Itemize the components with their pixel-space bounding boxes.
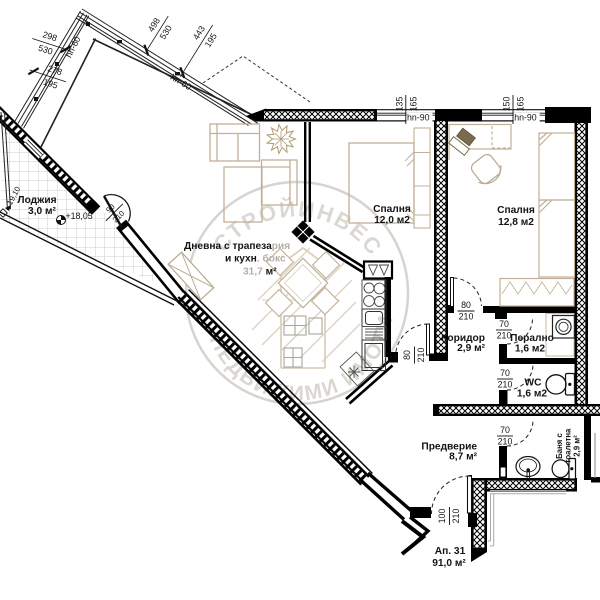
svg-text:1,6 м2: 1,6 м2 [515, 344, 546, 355]
svg-text:91,0 м²: 91,0 м² [432, 558, 466, 569]
svg-text:210: 210 [498, 380, 513, 390]
svg-text:165: 165 [516, 97, 526, 112]
svg-text:Спалня: Спалня [497, 205, 535, 216]
svg-text:70: 70 [500, 425, 510, 435]
svg-text:Спалня: Спалня [373, 204, 411, 215]
svg-text:12,8 м2: 12,8 м2 [498, 217, 534, 228]
svg-text:100: 100 [437, 509, 447, 524]
svg-text:135: 135 [394, 97, 404, 112]
svg-text:210: 210 [459, 312, 474, 322]
svg-text:2,9 м²: 2,9 м² [457, 343, 486, 354]
svg-text:12,0 м2: 12,0 м2 [374, 215, 410, 226]
svg-text:210: 210 [498, 437, 513, 447]
svg-text:165: 165 [408, 97, 418, 112]
svg-text:hn-90: hn-90 [514, 113, 537, 123]
svg-text:и кухн. бокс: и кухн. бокс [225, 253, 286, 265]
svg-text:8,7 м²: 8,7 м² [449, 452, 478, 463]
svg-text:тоалетна: тоалетна [564, 428, 573, 463]
svg-text:+18,05: +18,05 [66, 211, 93, 221]
svg-text:80: 80 [402, 350, 412, 360]
svg-text:WC: WC [525, 378, 543, 389]
svg-text:80: 80 [461, 300, 471, 310]
svg-text:31,7 м²: 31,7 м² [243, 267, 277, 278]
svg-text:Дневна с трапезария: Дневна с трапезария [184, 241, 290, 252]
svg-text:Лоджия: Лоджия [17, 195, 56, 206]
svg-text:1,6 м2: 1,6 м2 [517, 389, 548, 400]
svg-text:210: 210 [416, 348, 426, 363]
svg-text:70: 70 [499, 319, 509, 329]
svg-text:hn-90: hn-90 [407, 113, 430, 123]
svg-text:Перално: Перално [510, 333, 554, 344]
svg-text:2,9 м²: 2,9 м² [573, 435, 582, 457]
svg-text:70: 70 [500, 368, 510, 378]
svg-text:210: 210 [451, 509, 461, 524]
svg-text:3,0 м²: 3,0 м² [28, 206, 57, 217]
svg-text:210: 210 [497, 331, 512, 341]
svg-text:Ап. 31: Ап. 31 [435, 546, 466, 557]
svg-text:150: 150 [502, 97, 512, 112]
